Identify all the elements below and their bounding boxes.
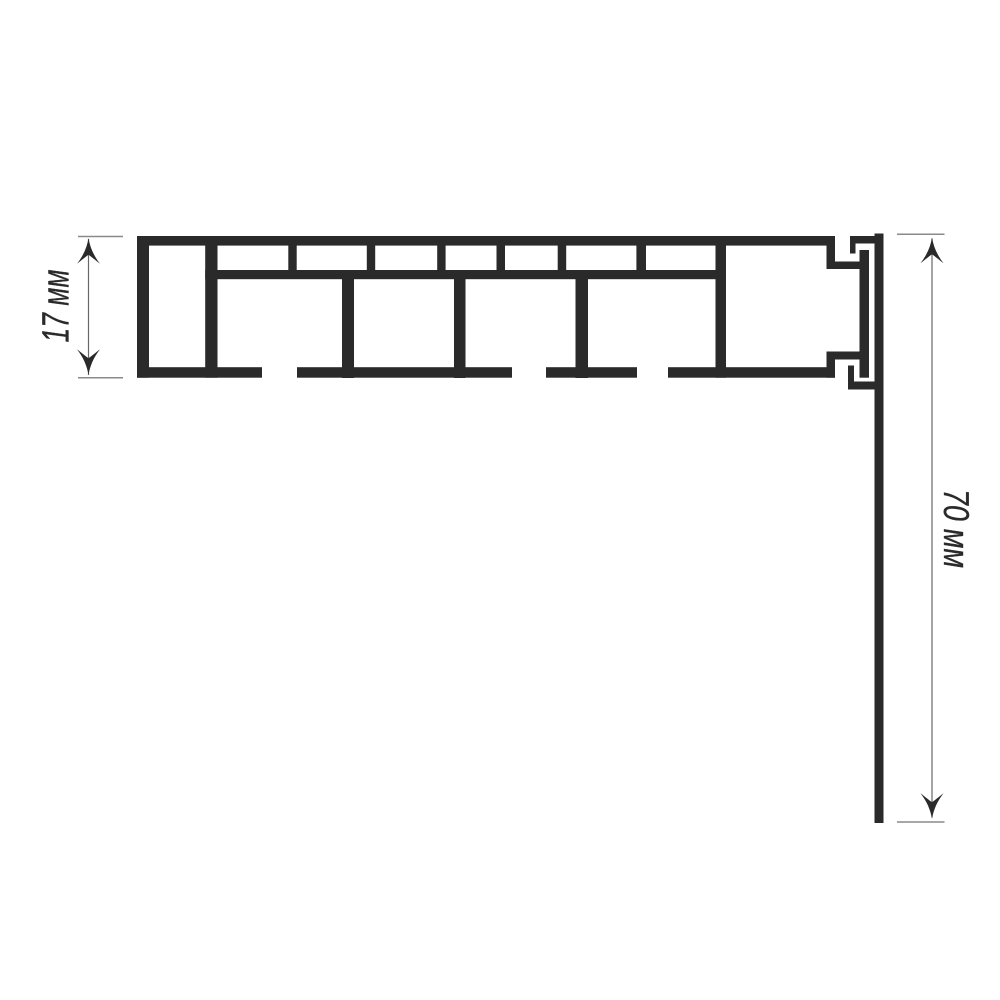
svg-text:17 мм: 17 мм xyxy=(36,270,78,343)
svg-text:70 мм: 70 мм xyxy=(936,489,977,568)
